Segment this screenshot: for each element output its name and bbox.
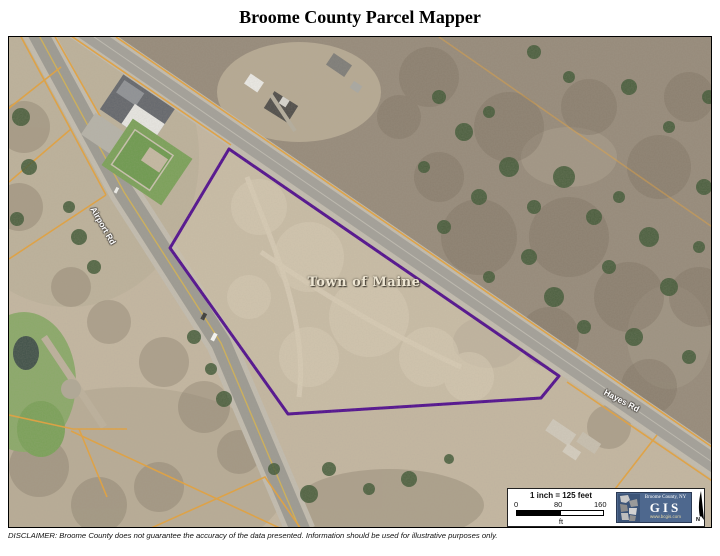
scale-legend-box: 1 inch = 125 feet 0 80 160 ft: [507, 488, 705, 527]
scale-bar: [516, 510, 604, 516]
page-title: Broome County Parcel Mapper: [0, 7, 720, 28]
parcel-mapper-page: Broome County Parcel Mapper: [0, 0, 720, 556]
scale-unit-label: ft: [508, 517, 614, 526]
county-map-icon: [618, 494, 640, 522]
gis-logo-text: Broome County, NY GIS www.bcgis.com: [640, 495, 691, 520]
logo-gis-label: GIS: [640, 501, 691, 514]
scale-tick-80: 80: [554, 500, 562, 509]
gis-logo: Broome County, NY GIS www.bcgis.com: [616, 492, 692, 523]
scale-bar-group: 1 inch = 125 feet 0 80 160 ft: [508, 489, 614, 526]
scale-ratio-label: 1 inch = 125 feet: [508, 491, 614, 500]
scale-bar-black-segment: [517, 511, 561, 515]
scale-tick-160: 160: [594, 500, 607, 509]
scale-tick-0: 0: [514, 500, 518, 509]
logo-url-label: www.bcgis.com: [640, 515, 691, 520]
town-label: Town of Maine: [304, 275, 424, 290]
map-viewport[interactable]: Town of Maine Airport Rd Hayes Rd 1 inch…: [8, 36, 712, 528]
disclaimer-text: DISCLAIMER: Broome County does not guara…: [8, 531, 712, 540]
north-label: N: [696, 517, 700, 523]
